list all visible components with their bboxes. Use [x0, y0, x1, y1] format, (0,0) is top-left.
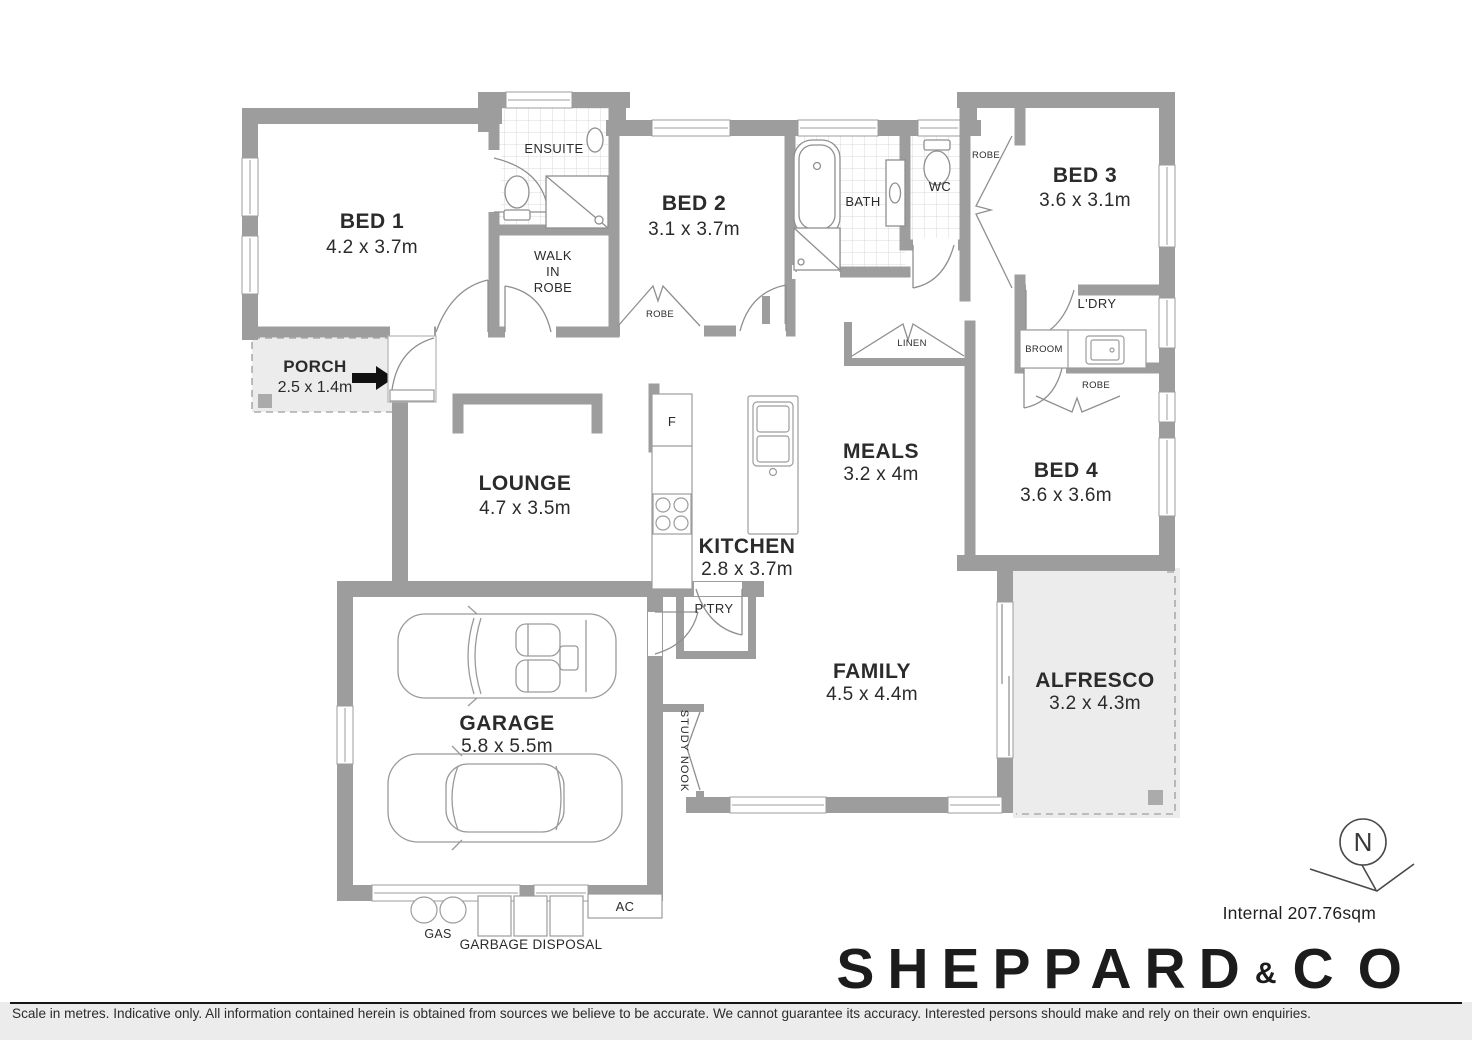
bed3-label: BED 3 [1053, 164, 1117, 187]
floorplan-page: { "rooms": { "bed1": {"name": "BED 1", "… [0, 0, 1472, 1040]
garage-dims: 5.8 x 5.5m [461, 736, 553, 757]
sliding-door [997, 602, 1013, 758]
disclaimer-strip: Scale in metres. Indicative only. All in… [0, 1002, 1472, 1040]
bed1-dims: 4.2 x 3.7m [326, 237, 418, 258]
family-label: FAMILY [833, 660, 911, 683]
porch-dims: 2.5 x 1.4m [278, 379, 353, 396]
garbage-bin-icon [478, 896, 511, 936]
brand-word1: SHEPPARD [836, 936, 1253, 1002]
alfresco-label: ALFRESCO [1035, 669, 1155, 692]
bed2-label: BED 2 [662, 192, 726, 215]
laundry-label: L'DRY [1078, 296, 1117, 311]
lounge-label: LOUNGE [479, 472, 572, 495]
gas-bottle-icon [411, 897, 437, 923]
porch-label: PORCH [283, 357, 346, 376]
garbage-bin-icon [514, 896, 547, 936]
basin-icon [587, 128, 603, 152]
garbage-label: GARBAGE DISPOSAL [460, 937, 603, 952]
entry-door [388, 336, 436, 402]
floorplan-drawing: N BED 1 4.2 x 3.7m BED 2 3.1 x 3.7m BED … [0, 0, 1472, 1040]
internal-area-label: Internal 207.76sqm [1223, 903, 1376, 923]
alfresco-dims: 3.2 x 4.3m [1049, 693, 1141, 714]
kitchen-dims: 2.8 x 3.7m [701, 559, 793, 580]
bed3-dims: 3.6 x 3.1m [1039, 190, 1131, 211]
brand-logo: SHEPPARD & CO [836, 936, 1426, 1002]
porch-post [258, 394, 272, 408]
garbage-bin-icon [550, 896, 583, 936]
north-letter: N [1354, 827, 1373, 857]
gas-label: GAS [424, 927, 451, 941]
wir-label-line1: WALK [534, 248, 572, 263]
wir-label-line2: IN [546, 264, 560, 279]
bed2-dims: 3.1 x 3.7m [648, 219, 740, 240]
bed1-label: BED 1 [340, 210, 404, 233]
pantry-label: P'TRY [695, 601, 734, 616]
ensuite-label: ENSUITE [524, 141, 583, 156]
coupe-car-icon [388, 746, 622, 850]
kitchen-label: KITCHEN [699, 535, 796, 558]
bed4-robe-label: ROBE [1082, 380, 1110, 391]
wir-label-line3: ROBE [534, 280, 572, 295]
toilet-icon [924, 140, 950, 150]
broom-label: BROOM [1025, 344, 1062, 355]
lounge-dims: 4.7 x 3.5m [479, 498, 571, 519]
toilet-icon [504, 210, 530, 220]
ac-label: AC [616, 899, 635, 914]
meals-label: MEALS [843, 440, 919, 463]
gas-bottle-icon [440, 897, 466, 923]
convertible-car-icon [398, 606, 616, 706]
brand-word2: CO [1293, 936, 1427, 1002]
bed2-robe-label: ROBE [646, 309, 674, 320]
alfresco-post [1148, 790, 1163, 805]
meals-dims: 3.2 x 4m [843, 464, 918, 485]
disclaimer-rule [10, 1002, 1462, 1004]
north-arrow-icon: N [1310, 819, 1414, 891]
fridge-label: F [668, 414, 676, 429]
study-nook-label: STUDY NOOK [678, 710, 690, 793]
garage-label: GARAGE [459, 712, 554, 735]
bed4-dims: 3.6 x 3.6m [1020, 485, 1112, 506]
disclaimer-text: Scale in metres. Indicative only. All in… [12, 1006, 1472, 1021]
bed4-label: BED 4 [1034, 459, 1098, 482]
wc-label: WC [929, 179, 951, 194]
linen-label: LINEN [897, 338, 926, 349]
bed3-robe-label: ROBE [972, 150, 1000, 161]
brand-ampersand: & [1255, 957, 1277, 991]
family-dims: 4.5 x 4.4m [826, 684, 918, 705]
bed2-robe-doors [618, 286, 700, 326]
bath-label: BATH [845, 194, 880, 209]
bed4-robe-doors [1036, 396, 1120, 412]
